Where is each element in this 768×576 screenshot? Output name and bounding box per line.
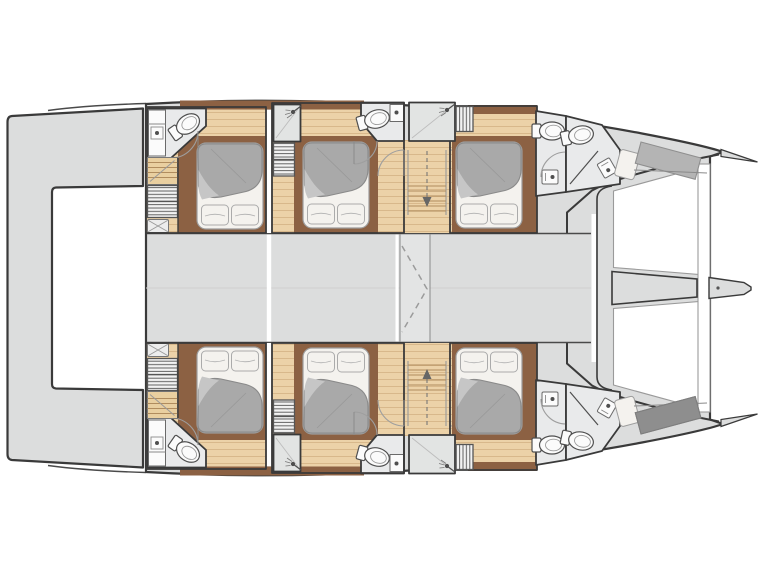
floor-plan-page: [0, 0, 768, 576]
deck-joint: [396, 235, 399, 342]
bowsprit-tip: [709, 278, 751, 299]
forward-crossbeam: [698, 164, 710, 412]
aft-platform: [8, 109, 144, 468]
bowsprit-fitting: [716, 286, 719, 289]
deck-joint: [267, 235, 271, 342]
catamaran-deck-plan: [0, 0, 768, 576]
starboard-bow-tip: [721, 414, 758, 427]
deck-joint: [592, 214, 597, 362]
port-bow-tip: [721, 150, 758, 163]
